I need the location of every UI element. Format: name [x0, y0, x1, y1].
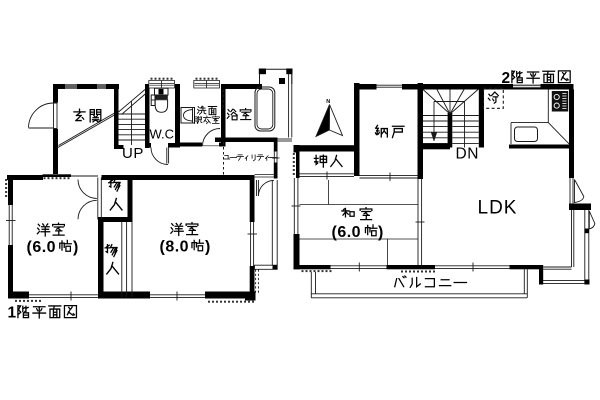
svg-text:DN: DN [456, 146, 479, 163]
svg-text:(6.0: (6.0 [27, 239, 57, 256]
svg-text:N: N [326, 99, 330, 105]
svg-text:2: 2 [502, 70, 511, 87]
svg-text:W.C: W.C [150, 126, 175, 141]
svg-text:): ) [378, 224, 383, 241]
svg-text:(6.0: (6.0 [332, 224, 362, 241]
svg-text:UP: UP [122, 145, 144, 162]
svg-text:1: 1 [8, 305, 17, 322]
svg-text:(8.0: (8.0 [160, 239, 190, 256]
svg-text:): ) [73, 239, 78, 256]
svg-text:LDK: LDK [478, 198, 518, 219]
svg-text:): ) [205, 239, 210, 256]
